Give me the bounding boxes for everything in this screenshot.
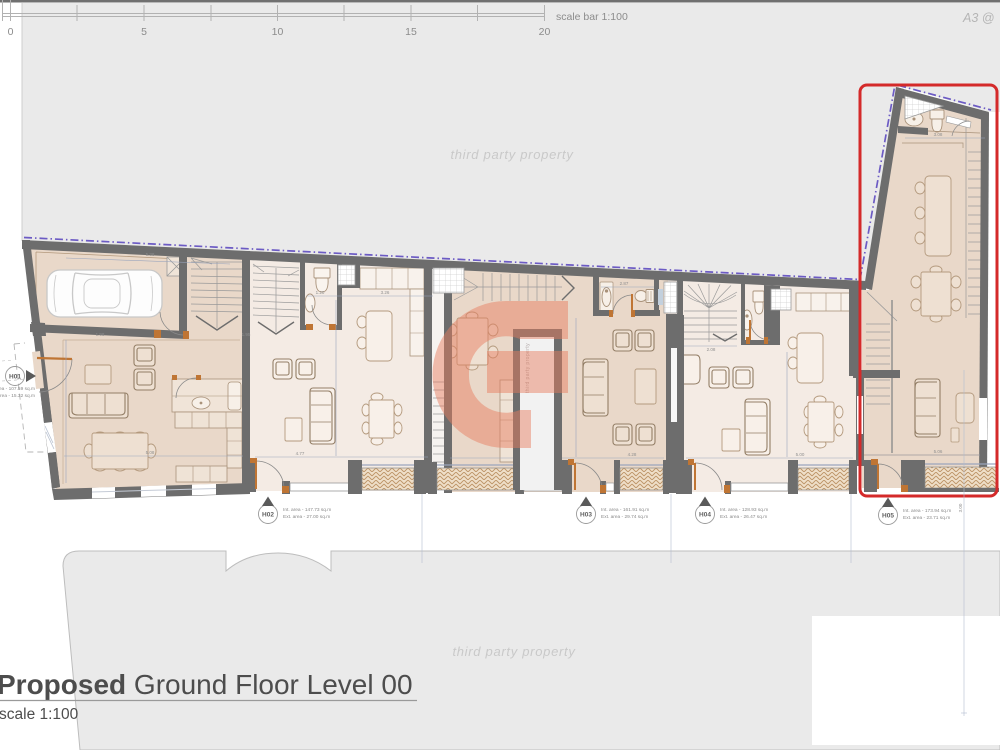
svg-text:1.20: 1.20 [316, 290, 325, 295]
svg-text:2.87: 2.87 [620, 281, 629, 286]
svg-text:5.00: 5.00 [796, 452, 805, 457]
svg-text:Ext. area - 15.32 sq.m: Ext. area - 15.32 sq.m [0, 393, 35, 399]
svg-text:5.38: 5.38 [146, 252, 155, 257]
svg-text:5.08: 5.08 [146, 450, 155, 455]
svg-text:4.28: 4.28 [628, 452, 637, 457]
svg-text:Ext. area - 29.74 sq.m: Ext. area - 29.74 sq.m [601, 514, 648, 520]
svg-text:Ext. area - 27.00 sq.m: Ext. area - 27.00 sq.m [283, 514, 330, 520]
svg-text:2.08: 2.08 [707, 347, 716, 352]
svg-text:1.98: 1.98 [96, 332, 105, 337]
svg-text:3.26: 3.26 [381, 290, 390, 295]
svg-text:third party property: third party property [450, 147, 574, 162]
svg-text:20: 20 [539, 26, 551, 38]
svg-text:1.95: 1.95 [242, 332, 251, 337]
svg-text:scale 1:100: scale 1:100 [0, 706, 79, 723]
svg-text:5: 5 [141, 26, 147, 38]
svg-text:H01: H01 [9, 374, 21, 381]
svg-text:H03: H03 [580, 512, 592, 519]
svg-text:H02: H02 [262, 512, 274, 519]
svg-text:Int. area - 161.91 sq.m: Int. area - 161.91 sq.m [601, 507, 649, 513]
svg-text:Int. area - 173.94 sq.m: Int. area - 173.94 sq.m [903, 508, 951, 514]
svg-text:Int. area - 128.93 sq.m: Int. area - 128.93 sq.m [720, 507, 768, 513]
svg-text:A3 @: A3 @ [962, 11, 994, 25]
svg-text:0: 0 [8, 26, 14, 38]
svg-text:3.00: 3.00 [958, 503, 963, 512]
svg-text:Int. area - 107.59 sq.m: Int. area - 107.59 sq.m [0, 386, 35, 392]
svg-text:Ext. area - 23.71 sq.m: Ext. area - 23.71 sq.m [903, 515, 950, 521]
svg-text:5.06: 5.06 [934, 449, 943, 454]
svg-text:10: 10 [272, 26, 284, 38]
svg-text:Ext. area - 26.47 sq.m: Ext. area - 26.47 sq.m [720, 514, 767, 520]
svg-text:scale bar 1:100: scale bar 1:100 [556, 11, 628, 23]
svg-text:H05: H05 [882, 513, 894, 520]
svg-text:Int. area - 147.73 sq.m: Int. area - 147.73 sq.m [283, 507, 331, 513]
svg-text:Proposed Ground Floor Level 00: Proposed Ground Floor Level 00 [0, 669, 413, 700]
svg-text:H04: H04 [699, 512, 711, 519]
svg-text:3.08: 3.08 [934, 132, 943, 137]
svg-text:4.77: 4.77 [296, 451, 305, 456]
svg-text:15: 15 [405, 26, 417, 38]
svg-text:third party property: third party property [452, 644, 576, 659]
